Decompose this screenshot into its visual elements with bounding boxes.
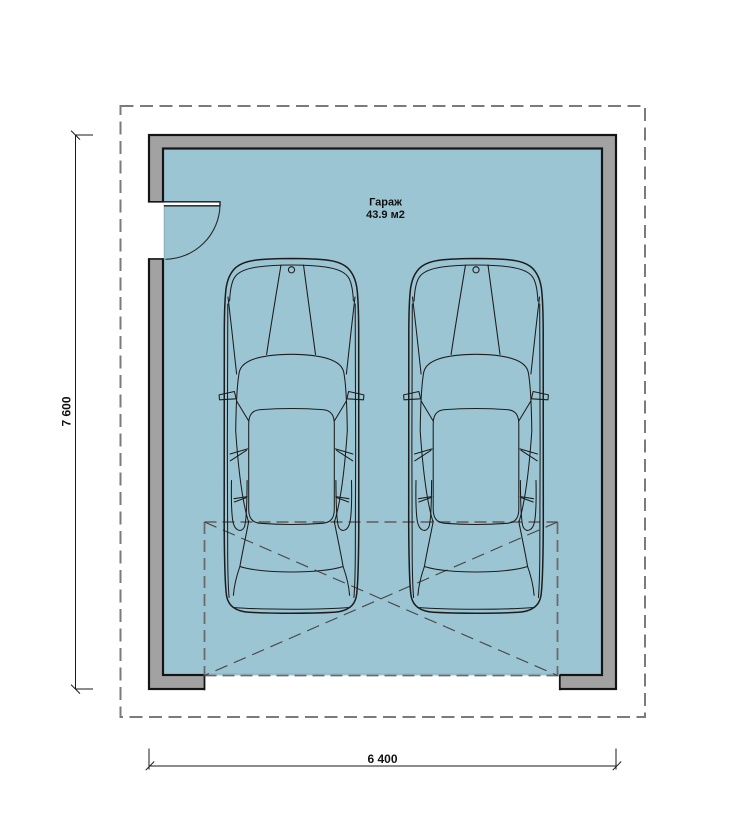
svg-text:6 400: 6 400 xyxy=(367,752,397,766)
svg-text:7 600: 7 600 xyxy=(60,396,74,426)
svg-text:Гараж: Гараж xyxy=(369,196,402,208)
svg-text:43.9 м2: 43.9 м2 xyxy=(366,209,405,221)
